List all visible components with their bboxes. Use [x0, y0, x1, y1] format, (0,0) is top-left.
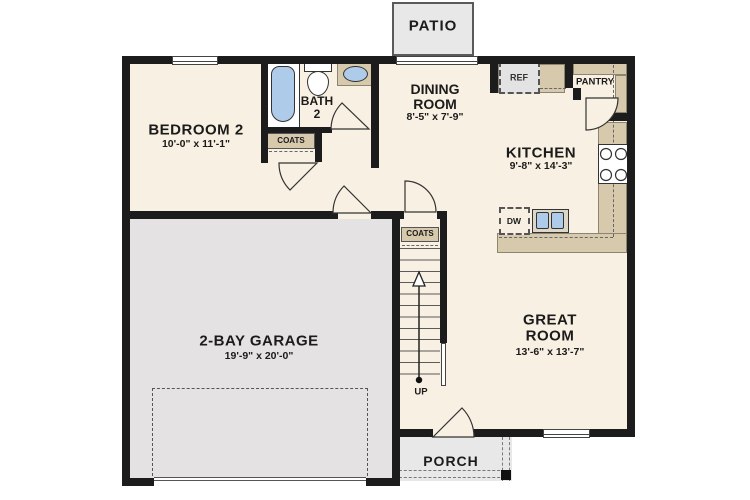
stove-burner [601, 149, 612, 160]
garage-dims: 19'-9" x 20'-0" [225, 351, 294, 362]
coats-hall-label: COATS [277, 137, 304, 145]
porch-label: PORCH [423, 454, 479, 468]
doors-and-symbols-overlay [0, 0, 750, 500]
bedroom2-dims: 10'-0" x 11'-1" [162, 139, 230, 150]
floor-plan: PATIO BEDROOM 2 10'-0" x 11'-1" BATH 2 C… [0, 0, 750, 500]
dining-name-line2: ROOM [413, 97, 457, 111]
greatroom-dims: 13'-6" x 13'-7" [516, 347, 585, 358]
bath2-name-line1: BATH [301, 95, 333, 107]
garage-entry-door [333, 186, 371, 213]
front-door [433, 408, 474, 437]
stove-burner [616, 170, 627, 181]
dishwasher-label: DW [507, 217, 521, 226]
patio-label: PATIO [409, 19, 458, 34]
bedroom2-name: BEDROOM 2 [148, 123, 243, 138]
dining-dims: 8'-5" x 7'-9" [407, 112, 464, 123]
bath2-name-line2: 2 [314, 108, 321, 120]
kitchen-name: KITCHEN [506, 146, 576, 161]
bedroom-door [279, 163, 317, 190]
stairs-up-label: UP [414, 387, 427, 397]
pantry-door [586, 98, 618, 130]
pantry-label: PANTRY [576, 77, 614, 87]
greatroom-name-line1: GREAT [523, 313, 577, 328]
garage-name: 2-BAY GARAGE [199, 334, 318, 349]
dining-name-line1: DINING [411, 82, 460, 96]
stove-burner [601, 170, 612, 181]
refrigerator-label: REF [510, 74, 528, 83]
coats-stairs-label: COATS [406, 230, 433, 238]
stove-burner [616, 149, 627, 160]
stairs-up-arrow [413, 272, 425, 383]
greatroom-name-line2: ROOM [526, 329, 575, 344]
bath-door [331, 103, 369, 129]
kitchen-dims: 9'-8" x 14'-3" [510, 161, 573, 172]
coats-stairs-door [405, 181, 436, 212]
